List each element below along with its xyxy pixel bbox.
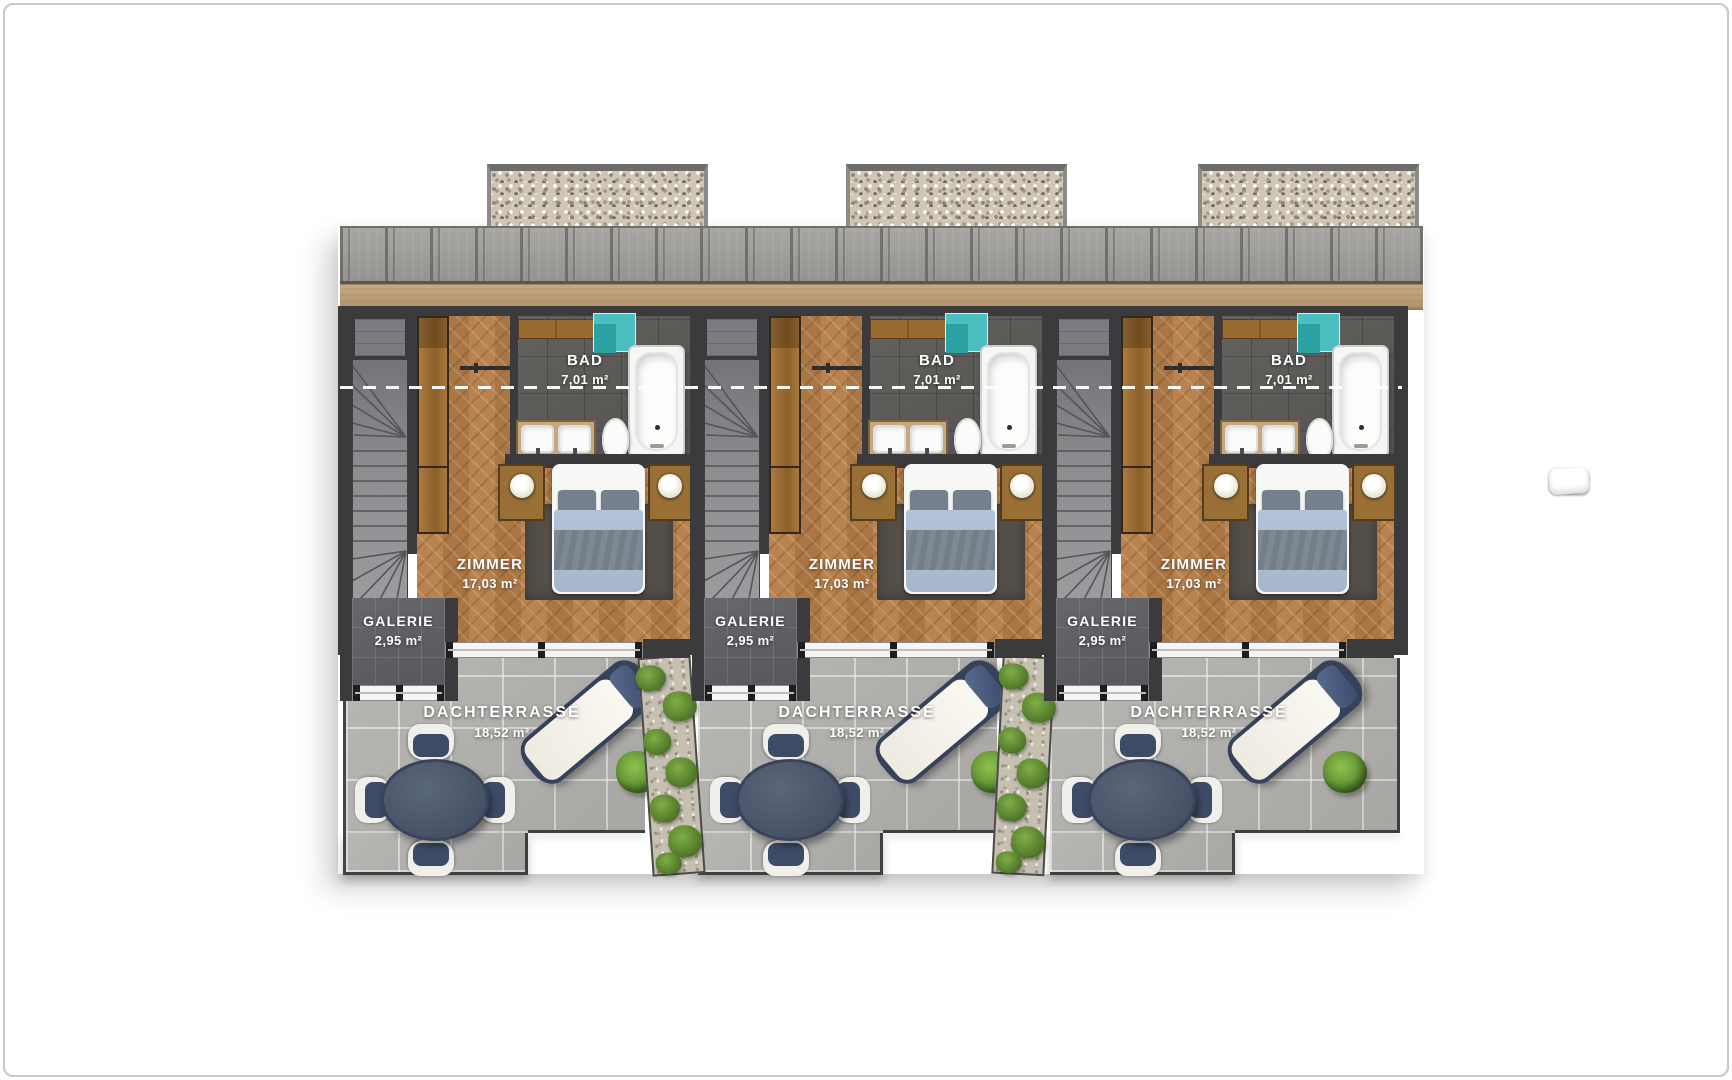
- terrace-table: [736, 759, 844, 841]
- double-vanity: [516, 420, 596, 458]
- bed-throw: [906, 530, 995, 570]
- wall: [690, 306, 1042, 316]
- double-bed: [552, 464, 645, 594]
- terrace-edge: [883, 830, 997, 833]
- wall: [1044, 598, 1056, 701]
- bathroom: [510, 316, 690, 468]
- floor-plan-scene: BAD7,01 m² ZIMMER17,03 m² GALERIE2,95 m²: [0, 0, 1732, 1080]
- bed-throw: [554, 530, 643, 570]
- double-vanity: [868, 420, 948, 458]
- wall: [340, 598, 352, 701]
- terrace-edge: [1235, 830, 1400, 833]
- terrace-sliding-door: [797, 642, 995, 658]
- stair-closet: [352, 316, 408, 359]
- sink: [910, 425, 943, 453]
- nightstand: [850, 464, 897, 521]
- galerie-window: [704, 685, 797, 701]
- room-label-zimmer: ZIMMER17,03 m²: [782, 554, 902, 593]
- terrace-edge: [528, 830, 645, 833]
- chair: [408, 840, 454, 876]
- staircase: [704, 359, 760, 604]
- wardrobe: [1121, 316, 1153, 534]
- room-label-dachterrasse: DACHTERRASSE18,52 m²: [402, 702, 602, 743]
- gravel-roof-strip: [1198, 164, 1419, 226]
- sink: [558, 425, 591, 453]
- double-bed: [1256, 464, 1349, 594]
- potted-plant: [1323, 751, 1367, 793]
- lamp: [1010, 474, 1034, 498]
- terrace-sliding-door: [1149, 642, 1347, 658]
- nightstand: [498, 464, 545, 521]
- terrace-table: [381, 759, 489, 841]
- stair-closet: [1056, 316, 1112, 359]
- chair: [1115, 840, 1161, 876]
- unit-2: BAD7,01 m² ZIMMER17,03 m² GALERIE2,95 m²: [690, 306, 1056, 658]
- stair-closet: [704, 316, 760, 359]
- wall: [408, 316, 417, 554]
- bath-cabinet: [1222, 319, 1298, 339]
- wall: [1394, 306, 1408, 655]
- double-bed: [904, 464, 997, 594]
- wall: [1347, 639, 1394, 658]
- room-label-dachterrasse: DACHTERRASSE18,52 m²: [757, 702, 957, 743]
- unit-1: BAD7,01 m² ZIMMER17,03 m² GALERIE2,95 m²: [338, 306, 704, 658]
- bath-cabinet: [870, 319, 946, 339]
- staircase: [1056, 359, 1112, 604]
- wall: [338, 306, 690, 316]
- sink: [521, 425, 554, 453]
- room-label-zimmer: ZIMMER17,03 m²: [430, 554, 550, 593]
- room-label-bad: BAD7,01 m²: [530, 350, 640, 389]
- nightstand: [1352, 464, 1396, 521]
- double-vanity: [1220, 420, 1300, 458]
- wardrobe: [769, 316, 801, 534]
- wall: [643, 639, 690, 658]
- sink: [1225, 425, 1258, 453]
- wall: [692, 598, 704, 701]
- wall: [760, 316, 769, 554]
- lamp: [658, 474, 682, 498]
- standing-seam-roof-band: [340, 226, 1423, 284]
- room-label-bad: BAD7,01 m²: [882, 350, 992, 389]
- sliding-door: [1164, 366, 1214, 370]
- galerie-window: [1056, 685, 1149, 701]
- nightstand: [648, 464, 692, 521]
- sink: [1262, 425, 1295, 453]
- terrace-sliding-door: [445, 642, 643, 658]
- bed-throw: [1258, 530, 1347, 570]
- chair: [763, 840, 809, 876]
- room-label-dachterrasse: DACHTERRASSE18,52 m²: [1109, 702, 1309, 743]
- room-label-galerie: GALERIE2,95 m²: [704, 612, 797, 650]
- nightstand: [1202, 464, 1249, 521]
- nightstand: [1000, 464, 1044, 521]
- terrace-table: [1088, 759, 1196, 841]
- lamp: [510, 474, 534, 498]
- galerie-window: [352, 685, 445, 701]
- lamp: [862, 474, 886, 498]
- bathroom: [862, 316, 1042, 468]
- roof-slope-dashed-line: [340, 386, 1402, 389]
- lamp: [1362, 474, 1386, 498]
- staircase: [352, 359, 408, 604]
- sliding-door: [812, 366, 862, 370]
- sink: [873, 425, 906, 453]
- wall: [1112, 316, 1121, 554]
- wall: [995, 639, 1042, 658]
- room-label-galerie: GALERIE2,95 m²: [1056, 612, 1149, 650]
- lamp: [1214, 474, 1238, 498]
- room-label-galerie: GALERIE2,95 m²: [352, 612, 445, 650]
- gravel-roof-strip: [846, 164, 1067, 226]
- room-label-bad: BAD7,01 m²: [1234, 350, 1344, 389]
- wall: [1042, 306, 1394, 316]
- room-label-zimmer: ZIMMER17,03 m²: [1134, 554, 1254, 593]
- unit-3: BAD7,01 m² ZIMMER17,03 m² GALERIE2,95 m²: [1042, 306, 1408, 658]
- bathroom: [1214, 316, 1394, 468]
- pillow: [1548, 467, 1590, 496]
- wardrobe: [417, 316, 449, 534]
- gravel-roof-strip: [487, 164, 708, 226]
- bath-cabinet: [518, 319, 594, 339]
- sliding-door: [460, 366, 510, 370]
